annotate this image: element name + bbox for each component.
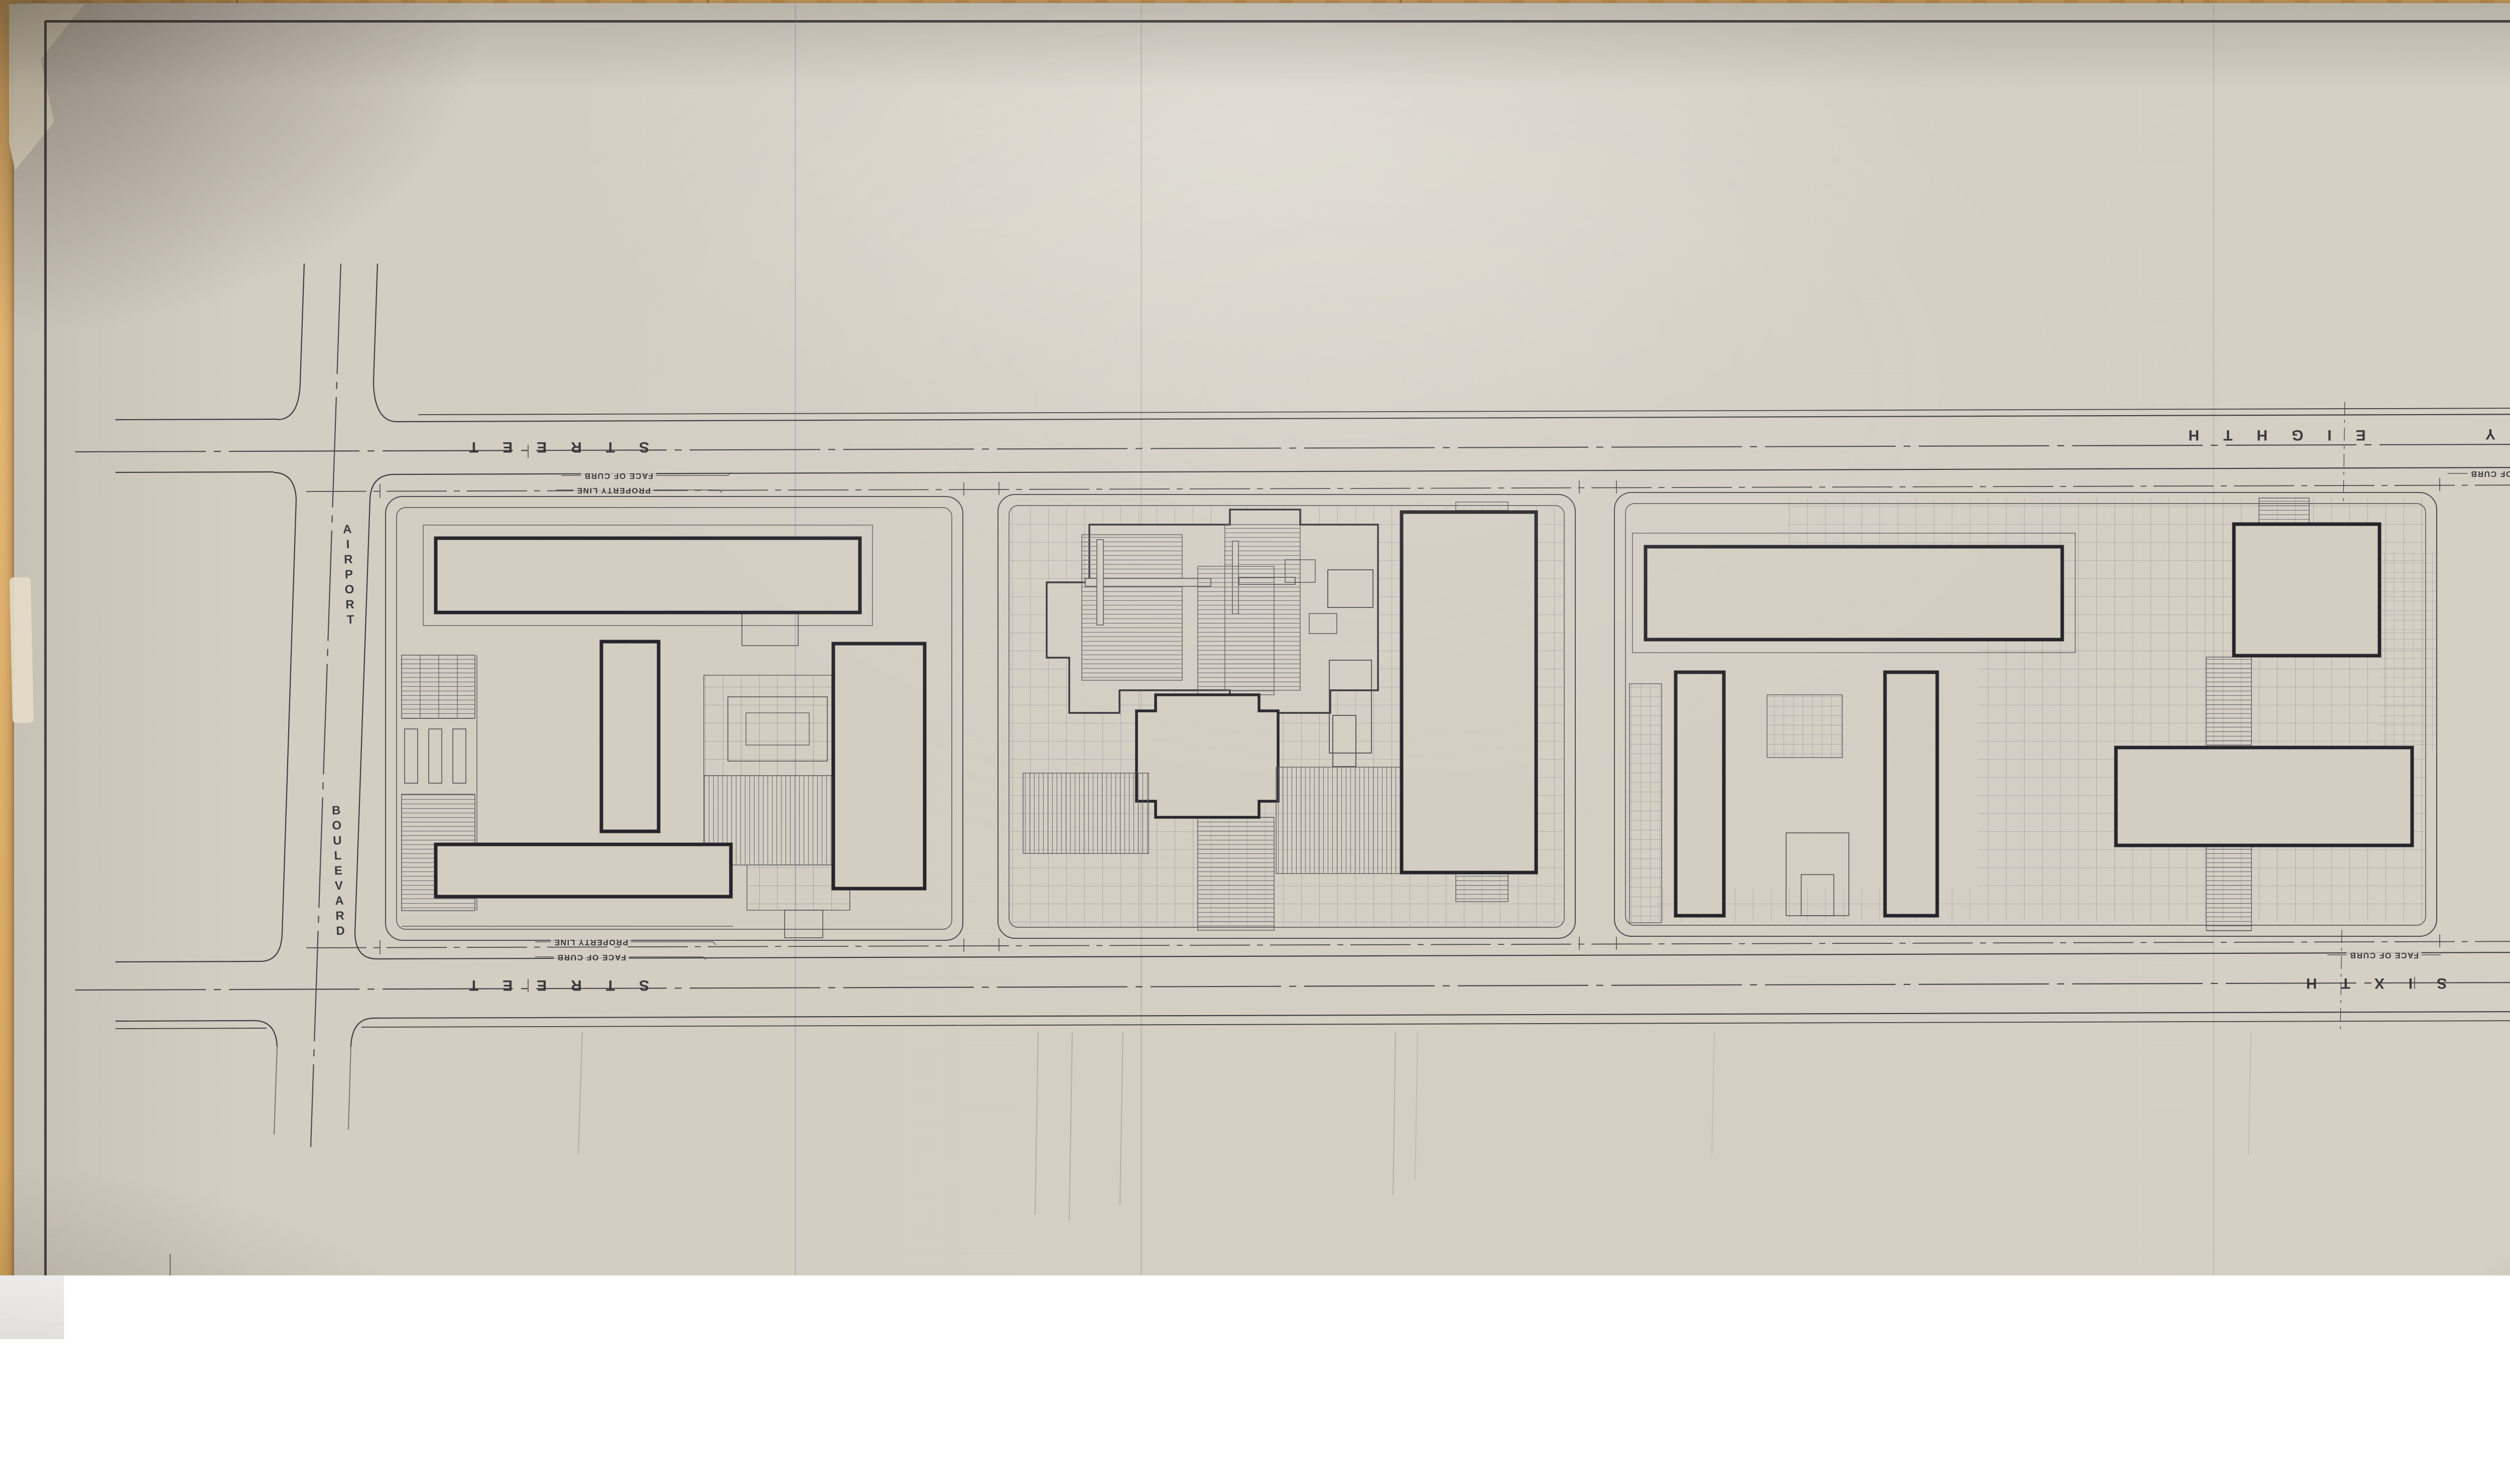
annotation-property-line: PROPERTY LINE bbox=[551, 937, 631, 946]
building bbox=[436, 844, 731, 897]
street-label-ninety-sixth-word2: SIXTH bbox=[2282, 974, 2447, 992]
street-label-ninety-sixth-suffix: STREET bbox=[445, 976, 649, 994]
building bbox=[436, 538, 860, 612]
building bbox=[1402, 512, 1536, 873]
street-label-ninety-eighth-word2: EIGHTH bbox=[2164, 426, 2365, 443]
block-east bbox=[1614, 492, 2437, 936]
building bbox=[1885, 672, 1937, 916]
annotation-face-of-curb: FACE OF CURB bbox=[2346, 950, 2422, 959]
north-arrow-letter: N bbox=[162, 1298, 178, 1324]
annotation-face-of-curb: FACE OF CURB bbox=[581, 471, 656, 480]
annotation-property-line: PROPERTY LINE bbox=[573, 485, 654, 494]
annotation-face-of-curb: FACE OF CURB bbox=[554, 952, 629, 961]
street-label-ninety-eighth-suffix: STREET bbox=[445, 438, 649, 455]
ghost-lines bbox=[578, 1032, 2510, 1220]
street-label-ninety-eighth-word1: NINETY bbox=[2461, 425, 2510, 442]
airport-boulevard-lines bbox=[255, 264, 397, 1147]
property-line-south bbox=[306, 941, 2510, 948]
photographed-site-plan: { "plan": { "title_hint": "Site plan of … bbox=[0, 0, 2510, 1484]
site-plan-drawing: N bbox=[0, 0, 2510, 1484]
street-label-ninety-sixth-word1: NINETY bbox=[2498, 973, 2510, 991]
annotation-face-of-curb: FACE OF CURB bbox=[2467, 469, 2510, 478]
building bbox=[2116, 748, 2412, 845]
ninety-eighth-centerline bbox=[75, 443, 2510, 452]
north-arrow: N bbox=[123, 1254, 217, 1377]
building bbox=[2234, 524, 2379, 656]
central-plaza bbox=[1137, 695, 1278, 817]
reference-line bbox=[2343, 402, 2345, 505]
block-west bbox=[386, 497, 963, 940]
building bbox=[833, 644, 925, 889]
building bbox=[601, 642, 659, 831]
ninety-sixth-centerline bbox=[75, 981, 2510, 990]
building bbox=[1646, 547, 2062, 640]
building bbox=[1676, 672, 1724, 916]
block-center bbox=[998, 494, 1575, 938]
